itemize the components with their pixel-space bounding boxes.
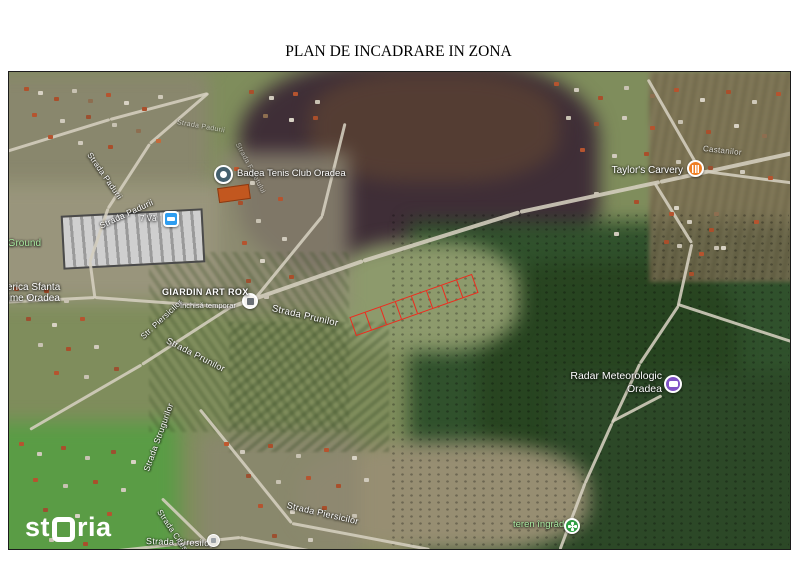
tennis-pin[interactable] xyxy=(214,165,233,184)
taylors-carvery-label[interactable]: Taylor's Carvery xyxy=(583,165,683,176)
camera-icon xyxy=(669,381,678,387)
warehouse-building xyxy=(61,208,206,269)
houses-cluster-bottomcenter xyxy=(224,442,229,446)
storia-watermark-st: st xyxy=(25,512,50,543)
houses-cluster-rightmid xyxy=(669,212,674,216)
tennis-ball-icon xyxy=(220,171,227,178)
tennis-club-label[interactable]: Badea Tenis Club Oradea xyxy=(237,168,346,179)
lodging-label[interactable]: 7 Vă xyxy=(140,214,156,223)
storia-watermark-ria: ria xyxy=(77,512,112,543)
generic-poi-icon xyxy=(211,538,216,543)
park-pin[interactable] xyxy=(564,518,580,534)
houses-cluster-bottomleft xyxy=(19,442,24,446)
road-segment xyxy=(29,364,142,431)
plan-title-line1: PLAN DE INCADRARE IN ZONA xyxy=(0,43,797,61)
radar-label-line2: Oradea xyxy=(542,383,662,396)
shopping-bag-icon xyxy=(247,298,254,305)
area-label-teren-ingradit: teren îngrăd xyxy=(513,519,564,530)
church-label-line1: Biserica Sfanta xyxy=(8,282,60,293)
houses-cluster-topright xyxy=(554,82,559,86)
church-label-line2: Treime Oradea xyxy=(8,293,60,304)
orchard-rows-center xyxy=(229,322,389,452)
giardin-label[interactable]: GIARDIN ART ROX xyxy=(162,287,249,297)
flower-icon xyxy=(568,522,577,531)
restaurant-pin[interactable] xyxy=(687,160,704,177)
area-label-kground: KGround xyxy=(8,238,41,249)
fork-knife-icon xyxy=(692,165,699,173)
attraction-pin[interactable] xyxy=(664,375,682,393)
storia-o-glyph xyxy=(52,517,75,542)
bed-icon xyxy=(167,217,175,221)
houses-cluster-topleft xyxy=(24,87,29,91)
radar-label[interactable]: Radar Meteorologic Oradea xyxy=(542,370,662,396)
lodging-pin[interactable] xyxy=(163,211,179,227)
generic-pin[interactable] xyxy=(207,534,220,547)
houses-cluster-topcenter xyxy=(249,90,254,94)
satellite-map[interactable]: Strada Padurii Strada Padurii Strada Pad… xyxy=(8,71,791,550)
giardin-status: Închisă temporar xyxy=(180,301,236,310)
church-label: Biserica Sfanta Treime Oradea xyxy=(8,282,60,304)
storia-watermark: stria xyxy=(25,512,112,543)
radar-label-line1: Radar Meteorologic xyxy=(542,370,662,383)
